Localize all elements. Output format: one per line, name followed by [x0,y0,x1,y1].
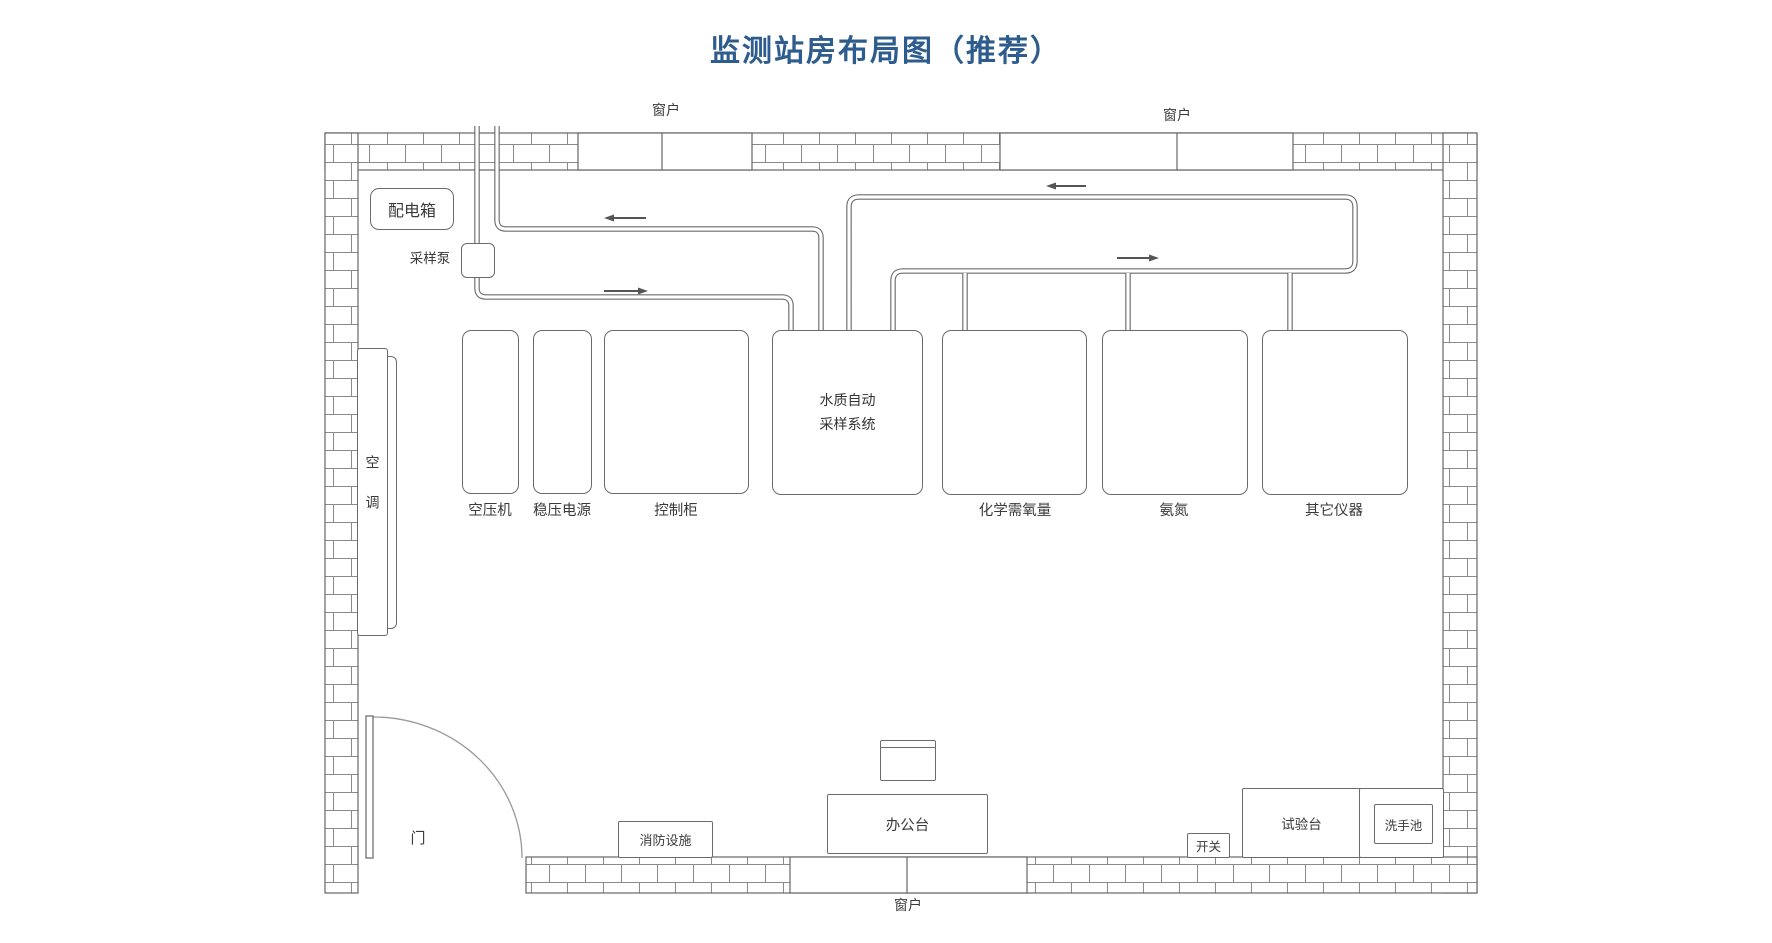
air-conditioner-label: 空调 [358,349,387,635]
flow-arrow-right [604,288,648,295]
door-leaf [366,716,373,858]
wash-basin: 洗手池 [1374,804,1433,844]
flow-arrow-return-left [1046,183,1086,190]
equipment-ammonia-analyzer [1102,330,1248,495]
test-bench: 试验台 [1242,788,1361,858]
office-desk: 办公台 [827,794,988,854]
distribution-box: 配电箱 [370,188,454,230]
test-bench-label: 试验台 [1281,813,1322,833]
fire-equipment: 消防设施 [618,821,713,858]
water-sampling-system-label-line1: 水质自动 [820,389,876,413]
air-conditioner: 空调 [357,348,388,636]
distribution-box-label: 配电箱 [388,197,436,221]
flow-arrow-distribution-right [1117,255,1159,262]
water-sampling-system-label-line2: 采样系统 [820,413,876,437]
voltage-stabilizer-label: 稳压电源 [522,503,602,520]
equipment-air-compressor [462,330,519,494]
sampling-pump-label: 采样泵 [401,251,459,267]
flow-arrow-left [604,215,646,222]
power-switch: 开关 [1187,833,1230,858]
window-bottom [790,857,1027,893]
window-top-right [1000,133,1293,170]
control-cabinet-label: 控制柜 [636,503,716,520]
window-label: 窗户 [1147,107,1207,124]
sampling-pump [461,243,495,278]
other-instruments-label: 其它仪器 [1294,503,1374,520]
equipment-control-cabinet [604,330,749,494]
power-switch-label: 开关 [1196,836,1221,855]
office-desk-label: 办公台 [886,814,930,835]
cod-analyzer-label: 化学需氧量 [960,503,1070,520]
wash-basin-label: 洗手池 [1385,815,1423,834]
equipment-cod-analyzer [942,330,1087,495]
door-swing-arc [373,717,522,858]
floor-plan: 监测站房布局图（推荐） [0,0,1772,943]
window-label: 窗户 [878,897,938,914]
equipment-voltage-stabilizer [533,330,592,494]
ammonia-analyzer-label: 氨氮 [1134,503,1214,520]
window-label: 窗户 [636,102,696,119]
air-conditioner-panel [388,356,397,629]
equipment-other-instruments [1262,330,1408,495]
office-chair [880,740,936,781]
window-top-left [578,133,752,170]
door-label: 门 [398,830,438,848]
air-compressor-label: 空压机 [450,503,530,520]
equipment-water-sampling-system: 水质自动 采样系统 [772,330,923,495]
chair-backrest-line [880,747,936,748]
wall-right [1443,133,1477,893]
wall-left [325,133,358,893]
fire-equipment-label: 消防设施 [639,830,691,849]
